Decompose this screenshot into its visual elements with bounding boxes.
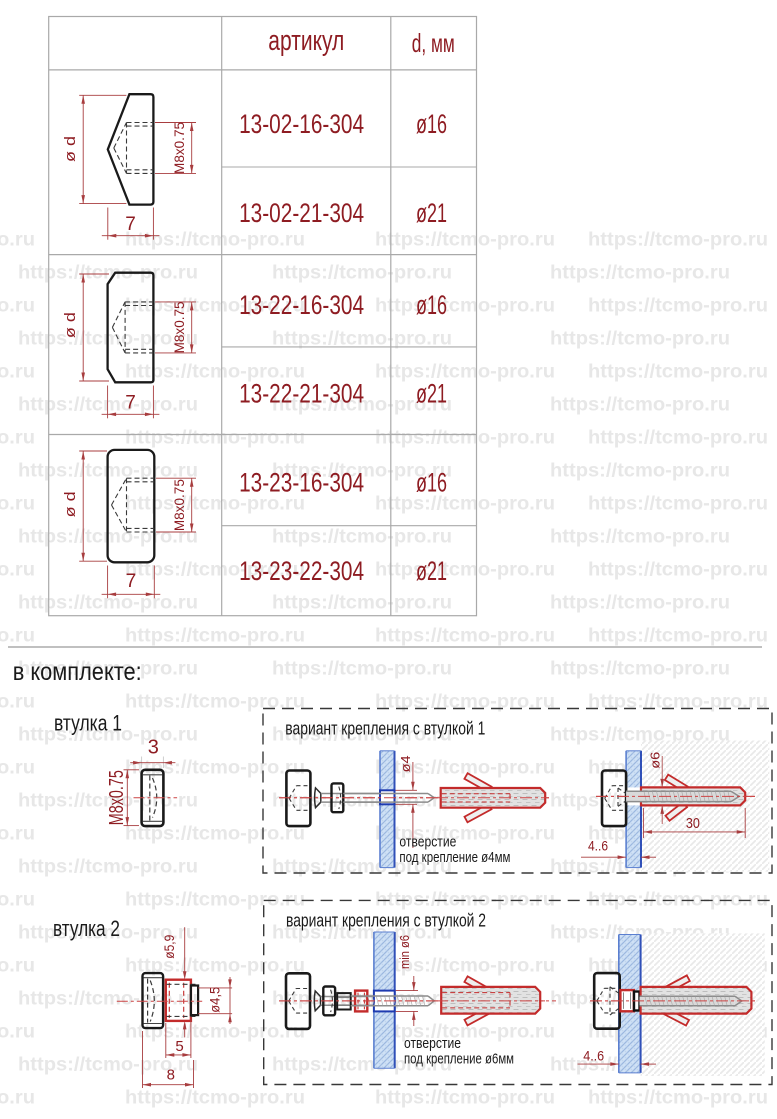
svg-text:4..6: 4..6 <box>588 838 608 854</box>
svg-text:ø6: ø6 <box>648 752 663 769</box>
svg-text:https://tcmo-pro.ru: https://tcmo-pro.ru <box>588 1088 768 1109</box>
svg-text:https://tcmo-pro.ru: https://tcmo-pro.ru <box>0 626 35 647</box>
svg-text:min ø6: min ø6 <box>397 935 412 969</box>
svg-text:https://tcmo-pro.ru: https://tcmo-pro.ru <box>0 230 35 251</box>
svg-text:13-23-22-304: 13-23-22-304 <box>239 556 364 586</box>
svg-text:ø16: ø16 <box>416 109 447 139</box>
svg-text:https://tcmo-pro.ru: https://tcmo-pro.ru <box>272 593 452 614</box>
svg-text:7: 7 <box>125 214 136 235</box>
svg-text:вариант крепления с втулкой 2: вариант крепления с втулкой 2 <box>286 910 486 930</box>
svg-text:https://tcmo-pro.ru: https://tcmo-pro.ru <box>125 626 305 647</box>
svg-text:https://tcmo-pro.ru: https://tcmo-pro.ru <box>375 1022 555 1043</box>
svg-text:https://tcmo-pro.ru: https://tcmo-pro.ru <box>0 758 35 779</box>
svg-text:https://tcmo-pro.ru: https://tcmo-pro.ru <box>0 296 35 317</box>
svg-text:30: 30 <box>686 815 700 832</box>
svg-text:https://tcmo-pro.ru: https://tcmo-pro.ru <box>588 296 768 317</box>
svg-text:ø d: ø d <box>62 491 79 517</box>
svg-text:13-02-21-304: 13-02-21-304 <box>239 198 364 228</box>
svg-text:ø5,9: ø5,9 <box>161 935 177 959</box>
svg-text:https://tcmo-pro.ru: https://tcmo-pro.ru <box>0 956 35 977</box>
svg-text:https://tcmo-pro.ru: https://tcmo-pro.ru <box>588 428 768 449</box>
svg-text:ø16: ø16 <box>416 467 447 497</box>
svg-text:https://tcmo-pro.ru: https://tcmo-pro.ru <box>18 857 198 878</box>
svg-text:https://tcmo-pro.ru: https://tcmo-pro.ru <box>0 560 35 581</box>
svg-text:https://tcmo-pro.ru: https://tcmo-pro.ru <box>0 362 35 383</box>
svg-text:ø d: ø d <box>62 136 79 162</box>
svg-text:ø21: ø21 <box>416 379 447 409</box>
svg-text:ø d: ø d <box>62 312 79 338</box>
svg-text:https://tcmo-pro.ru: https://tcmo-pro.ru <box>18 989 198 1010</box>
svg-text:https://tcmo-pro.ru: https://tcmo-pro.ru <box>375 362 555 383</box>
svg-text:13-22-16-304: 13-22-16-304 <box>239 290 364 320</box>
svg-text:https://tcmo-pro.ru: https://tcmo-pro.ru <box>375 296 555 317</box>
svg-text:https://tcmo-pro.ru: https://tcmo-pro.ru <box>272 527 452 548</box>
svg-text:ø4,5: ø4,5 <box>207 987 223 1013</box>
svg-text:https://tcmo-pro.ru: https://tcmo-pro.ru <box>0 428 35 449</box>
svg-text:ø16: ø16 <box>416 290 447 320</box>
svg-text:https://tcmo-pro.ru: https://tcmo-pro.ru <box>125 1022 305 1043</box>
svg-text:https://tcmo-pro.ru: https://tcmo-pro.ru <box>375 626 555 647</box>
svg-text:https://tcmo-pro.ru: https://tcmo-pro.ru <box>0 494 35 515</box>
svg-text:втулка 1: втулка 1 <box>54 711 122 736</box>
svg-text:M8x0.75: M8x0.75 <box>106 770 128 825</box>
svg-text:d, мм: d, мм <box>412 28 455 58</box>
svg-text:https://tcmo-pro.ru: https://tcmo-pro.ru <box>125 890 305 911</box>
svg-text:https://tcmo-pro.ru: https://tcmo-pro.ru <box>550 263 730 284</box>
svg-text:https://tcmo-pro.ru: https://tcmo-pro.ru <box>375 560 555 581</box>
svg-text:https://tcmo-pro.ru: https://tcmo-pro.ru <box>125 1088 305 1109</box>
svg-text:под крепление ø6мм: под крепление ø6мм <box>404 1050 514 1067</box>
svg-text:M8x0.75: M8x0.75 <box>171 479 187 531</box>
svg-text:https://tcmo-pro.ru: https://tcmo-pro.ru <box>588 626 768 647</box>
svg-text:https://tcmo-pro.ru: https://tcmo-pro.ru <box>375 230 555 251</box>
svg-text:https://tcmo-pro.ru: https://tcmo-pro.ru <box>0 1088 35 1109</box>
svg-text:https://tcmo-pro.ru: https://tcmo-pro.ru <box>550 461 730 482</box>
svg-text:ø4: ø4 <box>398 755 413 772</box>
svg-text:https://tcmo-pro.ru: https://tcmo-pro.ru <box>550 395 730 416</box>
svg-text:M8x0.75: M8x0.75 <box>171 122 187 174</box>
svg-text:13-22-21-304: 13-22-21-304 <box>239 379 364 409</box>
svg-text:https://tcmo-pro.ru: https://tcmo-pro.ru <box>0 890 35 911</box>
svg-text:https://tcmo-pro.ru: https://tcmo-pro.ru <box>588 692 768 713</box>
svg-text:https://tcmo-pro.ru: https://tcmo-pro.ru <box>272 659 452 680</box>
svg-text:вариант крепления с втулкой 1: вариант крепления с втулкой 1 <box>285 719 485 739</box>
svg-text:https://tcmo-pro.ru: https://tcmo-pro.ru <box>272 263 452 284</box>
svg-text:отверстие: отверстие <box>399 834 456 851</box>
svg-text:https://tcmo-pro.ru: https://tcmo-pro.ru <box>588 362 768 383</box>
svg-text:ø21: ø21 <box>416 198 447 228</box>
svg-text:7: 7 <box>125 393 136 414</box>
svg-text:https://tcmo-pro.ru: https://tcmo-pro.ru <box>125 230 305 251</box>
svg-text:в комплекте:: в комплекте: <box>13 658 142 686</box>
svg-text:https://tcmo-pro.ru: https://tcmo-pro.ru <box>0 692 35 713</box>
svg-text:https://tcmo-pro.ru: https://tcmo-pro.ru <box>125 692 305 713</box>
svg-text:5: 5 <box>175 1038 183 1055</box>
svg-text:https://tcmo-pro.ru: https://tcmo-pro.ru <box>18 263 198 284</box>
svg-text:M8x0.75: M8x0.75 <box>171 301 187 353</box>
svg-text:7: 7 <box>126 571 137 592</box>
svg-text:13-23-16-304: 13-23-16-304 <box>239 467 364 497</box>
svg-text:https://tcmo-pro.ru: https://tcmo-pro.ru <box>550 659 730 680</box>
svg-text:https://tcmo-pro.ru: https://tcmo-pro.ru <box>0 1022 35 1043</box>
svg-text:https://tcmo-pro.ru: https://tcmo-pro.ru <box>0 824 35 845</box>
svg-text:под крепление ø4мм: под крепление ø4мм <box>399 849 510 866</box>
svg-text:8: 8 <box>167 1067 175 1084</box>
svg-text:https://tcmo-pro.ru: https://tcmo-pro.ru <box>375 692 555 713</box>
svg-text:https://tcmo-pro.ru: https://tcmo-pro.ru <box>375 494 555 515</box>
svg-text:https://tcmo-pro.ru: https://tcmo-pro.ru <box>550 329 730 350</box>
svg-text:https://tcmo-pro.ru: https://tcmo-pro.ru <box>588 560 768 581</box>
svg-text:3: 3 <box>148 737 159 759</box>
svg-text:https://tcmo-pro.ru: https://tcmo-pro.ru <box>550 593 730 614</box>
svg-text:https://tcmo-pro.ru: https://tcmo-pro.ru <box>588 230 768 251</box>
svg-text:4..6: 4..6 <box>583 1048 604 1064</box>
svg-text:втулка 2: втулка 2 <box>53 916 120 941</box>
svg-text:https://tcmo-pro.ru: https://tcmo-pro.ru <box>125 428 305 449</box>
svg-text:https://tcmo-pro.ru: https://tcmo-pro.ru <box>588 494 768 515</box>
svg-text:https://tcmo-pro.ru: https://tcmo-pro.ru <box>375 428 555 449</box>
svg-text:13-02-16-304: 13-02-16-304 <box>239 109 364 139</box>
svg-text:https://tcmo-pro.ru: https://tcmo-pro.ru <box>550 527 730 548</box>
svg-text:артикул: артикул <box>268 25 344 57</box>
svg-text:ø21: ø21 <box>416 556 447 586</box>
svg-text:https://tcmo-pro.ru: https://tcmo-pro.ru <box>375 1088 555 1109</box>
